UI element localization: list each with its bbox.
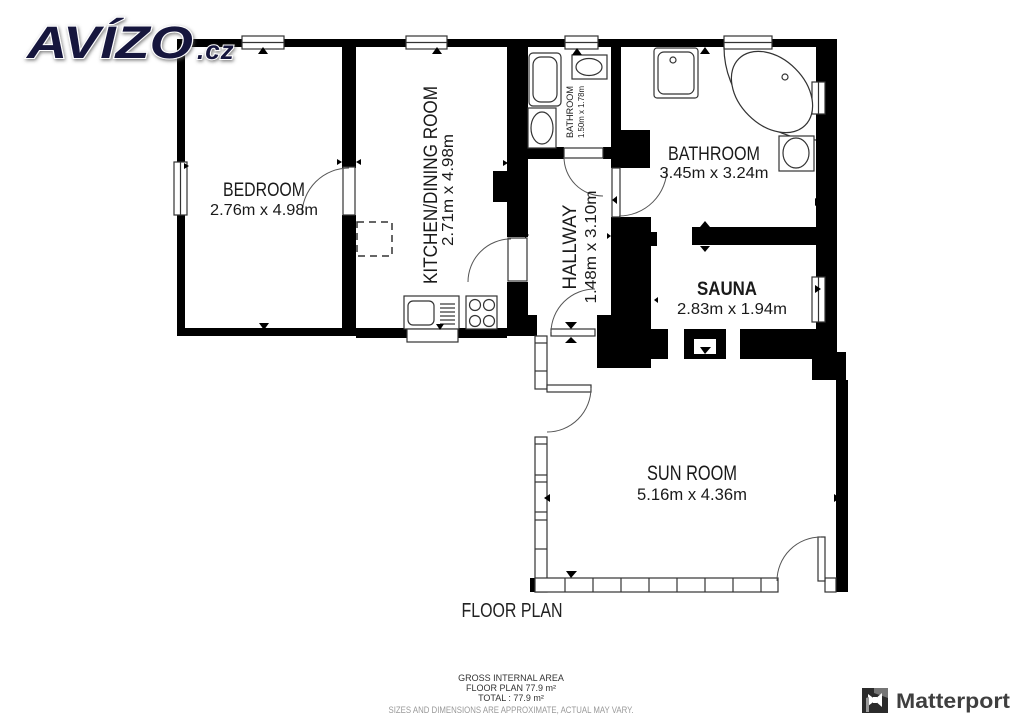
- svg-text:2.71m x 4.98m: 2.71m x 4.98m: [440, 134, 457, 246]
- svg-text:KITCHEN/DINING ROOM: KITCHEN/DINING ROOM: [421, 86, 442, 284]
- svg-text:SUN ROOM: SUN ROOM: [647, 462, 737, 485]
- svg-text:SAUNA: SAUNA: [697, 279, 757, 300]
- svg-text:1.50m x 1.78m: 1.50m x 1.78m: [577, 86, 586, 138]
- svg-text:BEDROOM: BEDROOM: [223, 180, 305, 201]
- svg-text:2.83m x 1.94m: 2.83m x 1.94m: [677, 301, 787, 318]
- svg-text:BATHROOM: BATHROOM: [565, 86, 576, 138]
- svg-text:.cz: .cz: [197, 35, 235, 65]
- svg-text:BATHROOM: BATHROOM: [668, 144, 760, 165]
- svg-text:Matterport: Matterport: [896, 690, 1010, 713]
- svg-text:1.48m x 3.10m: 1.48m x 3.10m: [583, 191, 600, 304]
- svg-text:TOTAL : 77.9 m²: TOTAL : 77.9 m²: [478, 693, 544, 703]
- svg-text:SIZES AND DIMENSIONS ARE APPRO: SIZES AND DIMENSIONS ARE APPROXIMATE, AC…: [389, 705, 634, 715]
- svg-text:GROSS INTERNAL AREA: GROSS INTERNAL AREA: [458, 673, 564, 683]
- svg-text:FLOOR PLAN 77.9 m²: FLOOR PLAN 77.9 m²: [466, 683, 556, 693]
- svg-text:HALLWAY: HALLWAY: [560, 204, 581, 289]
- svg-text:FLOOR PLAN: FLOOR PLAN: [462, 600, 563, 622]
- svg-text:AVÍZO: AVÍZO: [26, 17, 193, 68]
- svg-text:2.76m x 4.98m: 2.76m x 4.98m: [210, 202, 318, 219]
- svg-text:3.45m x 3.24m: 3.45m x 3.24m: [660, 165, 769, 182]
- svg-text:5.16m x 4.36m: 5.16m x 4.36m: [637, 485, 747, 504]
